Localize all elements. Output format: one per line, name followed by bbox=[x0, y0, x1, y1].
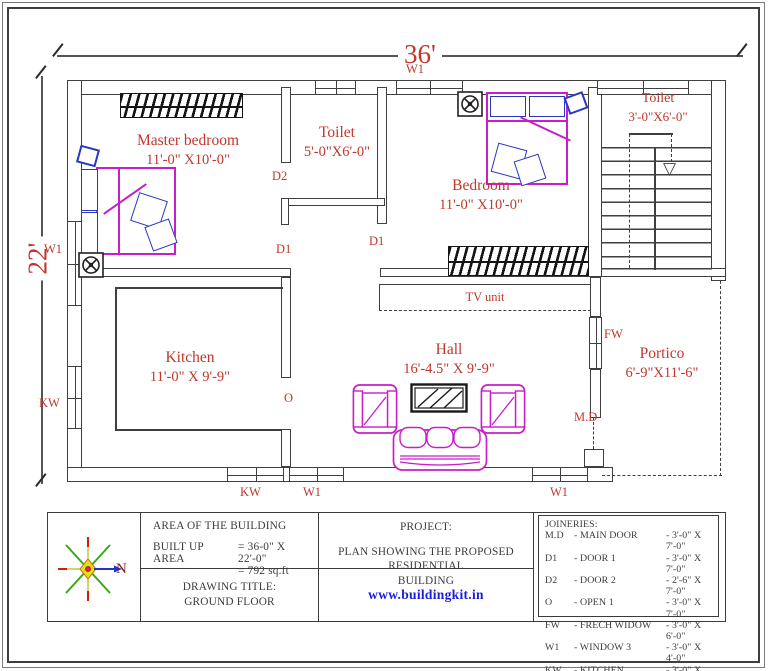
room-label-bedroom: Bedroom 11'-0" X10'-0" bbox=[439, 176, 523, 216]
wall-exterior-right bbox=[711, 80, 726, 281]
wall-kitchen-right-upper bbox=[281, 277, 291, 378]
portico-boundary-bottom-dashed bbox=[602, 475, 722, 476]
ceiling-fan-icon bbox=[78, 252, 104, 278]
stair-down-arrow-icon: ▽ bbox=[663, 160, 676, 177]
joinery-row: O- OPEN 1- 3'-0" X 7'-0" bbox=[545, 597, 714, 619]
built-up-area-value: = 36-0" X 22'-0" bbox=[238, 541, 310, 565]
north-compass-cell: N bbox=[48, 513, 141, 621]
joineries-cell: JOINERIES: M.D- MAIN DOOR- 3'-0" X 7'-0"… bbox=[534, 513, 725, 621]
tv-unit: TV unit bbox=[379, 284, 591, 311]
room-label-kitchen: Kitchen 11'-0" X 9'-9" bbox=[150, 348, 230, 388]
kitchen-counter-line bbox=[115, 287, 117, 430]
website-link[interactable]: www.buildingkit.in bbox=[368, 587, 484, 603]
floor-plan-sheet: 36' 22' ▽ TV unit bbox=[0, 0, 768, 671]
joinery-row: D1- DOOR 1- 3'-0" X 7'-0" bbox=[545, 553, 714, 575]
kitchen-counter-line bbox=[115, 429, 282, 431]
window-w1-bottom-left-symbol bbox=[289, 467, 344, 482]
window-kw-bottom-symbol bbox=[227, 467, 284, 482]
window-w1-top-symbol bbox=[396, 80, 463, 95]
area-heading: AREA OF THE BUILDING bbox=[153, 520, 310, 532]
joineries-heading: JOINERIES: bbox=[545, 519, 714, 530]
master-pillow bbox=[81, 169, 98, 211]
marker-md: M.D bbox=[574, 410, 597, 425]
wall-hall-right-upper bbox=[590, 277, 601, 317]
master-pillow bbox=[81, 212, 98, 255]
bedroom-wardrobe bbox=[448, 246, 589, 276]
area-of-building: AREA OF THE BUILDING BUILT UP AREA = 36-… bbox=[141, 513, 318, 569]
wall-toilet-bottom bbox=[281, 198, 385, 206]
joinery-row: W1- WINDOW 3- 3'-0" X 4'-0" bbox=[545, 642, 714, 664]
stair-path-bracket bbox=[629, 133, 673, 135]
joinery-row: FW- FRECH WIDOW- 3'-0" X 6'-0" bbox=[545, 620, 714, 642]
joineries-box: JOINERIES: M.D- MAIN DOOR- 3'-0" X 7'-0"… bbox=[538, 515, 719, 617]
bedroom-pillow bbox=[490, 96, 526, 117]
marker-d1-right: D1 bbox=[369, 234, 384, 249]
marker-fw: FW bbox=[604, 327, 623, 342]
area-drawing-title-cell: AREA OF THE BUILDING BUILT UP AREA = 36-… bbox=[141, 513, 319, 621]
master-wardrobe bbox=[120, 93, 243, 118]
joinery-row: M.D- MAIN DOOR- 3'-0" X 7'-0" bbox=[545, 530, 714, 552]
project-cell: PROJECT: PLAN SHOWING THE PROPOSED RESID… bbox=[319, 513, 534, 621]
staircase bbox=[602, 147, 712, 270]
coffee-table bbox=[410, 383, 468, 413]
tv-unit-label: TV unit bbox=[465, 290, 504, 305]
main-door-threshold bbox=[584, 449, 604, 467]
marker-open: O bbox=[284, 391, 293, 406]
room-label-master-bedroom: Master bedroom 11'-0" X10'-0" bbox=[137, 131, 239, 171]
ventilator-window-symbol bbox=[315, 80, 356, 95]
marker-d1-left: D1 bbox=[276, 242, 291, 257]
room-label-toilet-top: Toilet 5'-0"X6'-0" bbox=[304, 123, 370, 163]
wall-master-bottom bbox=[74, 268, 291, 277]
project-label: PROJECT: bbox=[319, 520, 533, 535]
north-label: N bbox=[116, 561, 127, 578]
stair-path-dashed bbox=[671, 134, 672, 162]
joinery-row: KW- KITCHEN- 3'-0" X 3'-0" bbox=[545, 665, 714, 671]
joinery-row: D2- DOOR 2- 2'-6" X 7'-0" bbox=[545, 575, 714, 597]
drawing-title-label: DRAWING TITLE: bbox=[183, 580, 277, 595]
sofa bbox=[392, 426, 488, 472]
stair-centerline-dashed bbox=[629, 134, 630, 268]
window-w1-bottom-right-symbol bbox=[532, 467, 588, 482]
drawing-title: DRAWING TITLE: GROUND FLOOR bbox=[141, 569, 318, 621]
room-label-toilet-stair: Toilet 3'-0"X6'-0" bbox=[628, 90, 687, 126]
french-window-symbol bbox=[589, 317, 602, 369]
wall-toilet-return bbox=[281, 198, 289, 225]
room-label-portico: Portico 6'-9"X11'-6" bbox=[626, 344, 699, 384]
marker-kw-bottom: KW bbox=[240, 485, 261, 500]
ceiling-fan-icon bbox=[457, 91, 483, 117]
wall-toilet-left bbox=[281, 87, 291, 163]
stair-divider-line bbox=[654, 147, 656, 270]
master-bed-blanket-line bbox=[118, 169, 120, 253]
marker-w1-top: W1 bbox=[406, 62, 424, 77]
drawing-title-value: GROUND FLOOR bbox=[184, 595, 275, 610]
kitchen-counter-line bbox=[115, 287, 283, 289]
title-block: N AREA OF THE BUILDING BUILT UP AREA = 3… bbox=[47, 512, 726, 622]
marker-d2: D2 bbox=[272, 169, 287, 184]
marker-kw-left: KW bbox=[39, 396, 60, 411]
window-kw-left-symbol bbox=[67, 366, 82, 429]
marker-w1-bottom-left: W1 bbox=[303, 485, 321, 500]
portico-boundary-right-dashed bbox=[720, 281, 721, 476]
project-info: PROJECT: PLAN SHOWING THE PROPOSED RESID… bbox=[319, 513, 533, 569]
marker-w1-bottom-right: W1 bbox=[550, 485, 568, 500]
room-label-hall: Hall 16'-4.5" X 9'-9" bbox=[403, 340, 495, 380]
marker-w1-left: W1 bbox=[44, 242, 62, 257]
wall-kitchen-right-lower bbox=[281, 429, 291, 467]
wall-stair-left bbox=[588, 87, 602, 277]
bedroom-pillow bbox=[529, 96, 565, 117]
